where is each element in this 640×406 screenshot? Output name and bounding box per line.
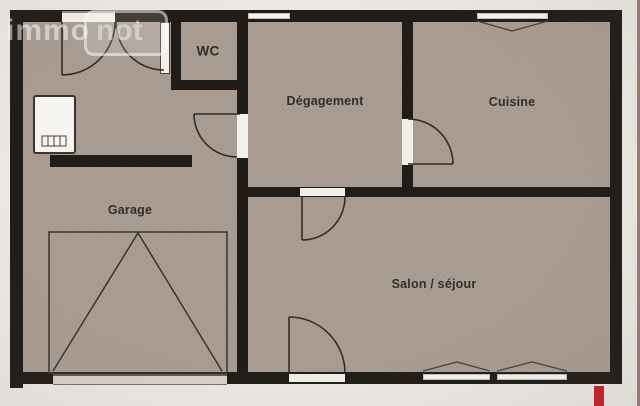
red-marker-bar bbox=[594, 386, 604, 406]
room-label-cuisine: Cuisine bbox=[489, 95, 536, 109]
garage-door-opening bbox=[53, 374, 227, 385]
door-opening-degagement bbox=[237, 114, 248, 158]
wall-exterior-left bbox=[10, 10, 23, 388]
room-label-salon: Salon / séjour bbox=[392, 277, 477, 291]
entry-door-opening bbox=[62, 13, 115, 22]
room-label-degagement: Dégagement bbox=[286, 94, 363, 108]
floor-plan: WC Dégagement Cuisine Garage Salon / séj… bbox=[0, 0, 640, 406]
wc-door-leaf bbox=[160, 22, 170, 74]
window-salon-2 bbox=[497, 374, 567, 380]
window-salon-1 bbox=[423, 374, 490, 380]
door-opening-cuisine bbox=[402, 119, 413, 165]
floor-area bbox=[10, 10, 622, 384]
wall-central-vertical bbox=[237, 22, 248, 384]
window-degagement bbox=[248, 13, 290, 19]
window-cuisine bbox=[477, 13, 548, 19]
wall-exterior-right bbox=[610, 10, 622, 384]
room-label-wc: WC bbox=[197, 44, 220, 59]
room-label-garage: Garage bbox=[108, 203, 152, 217]
entry-door-lintel bbox=[62, 11, 115, 13]
door-opening-salon bbox=[300, 188, 345, 196]
wall-degagement-cuisine bbox=[402, 22, 413, 192]
boiler-box bbox=[33, 95, 76, 154]
salon-exterior-door-opening bbox=[289, 374, 345, 382]
wall-entry-garage bbox=[50, 155, 192, 167]
